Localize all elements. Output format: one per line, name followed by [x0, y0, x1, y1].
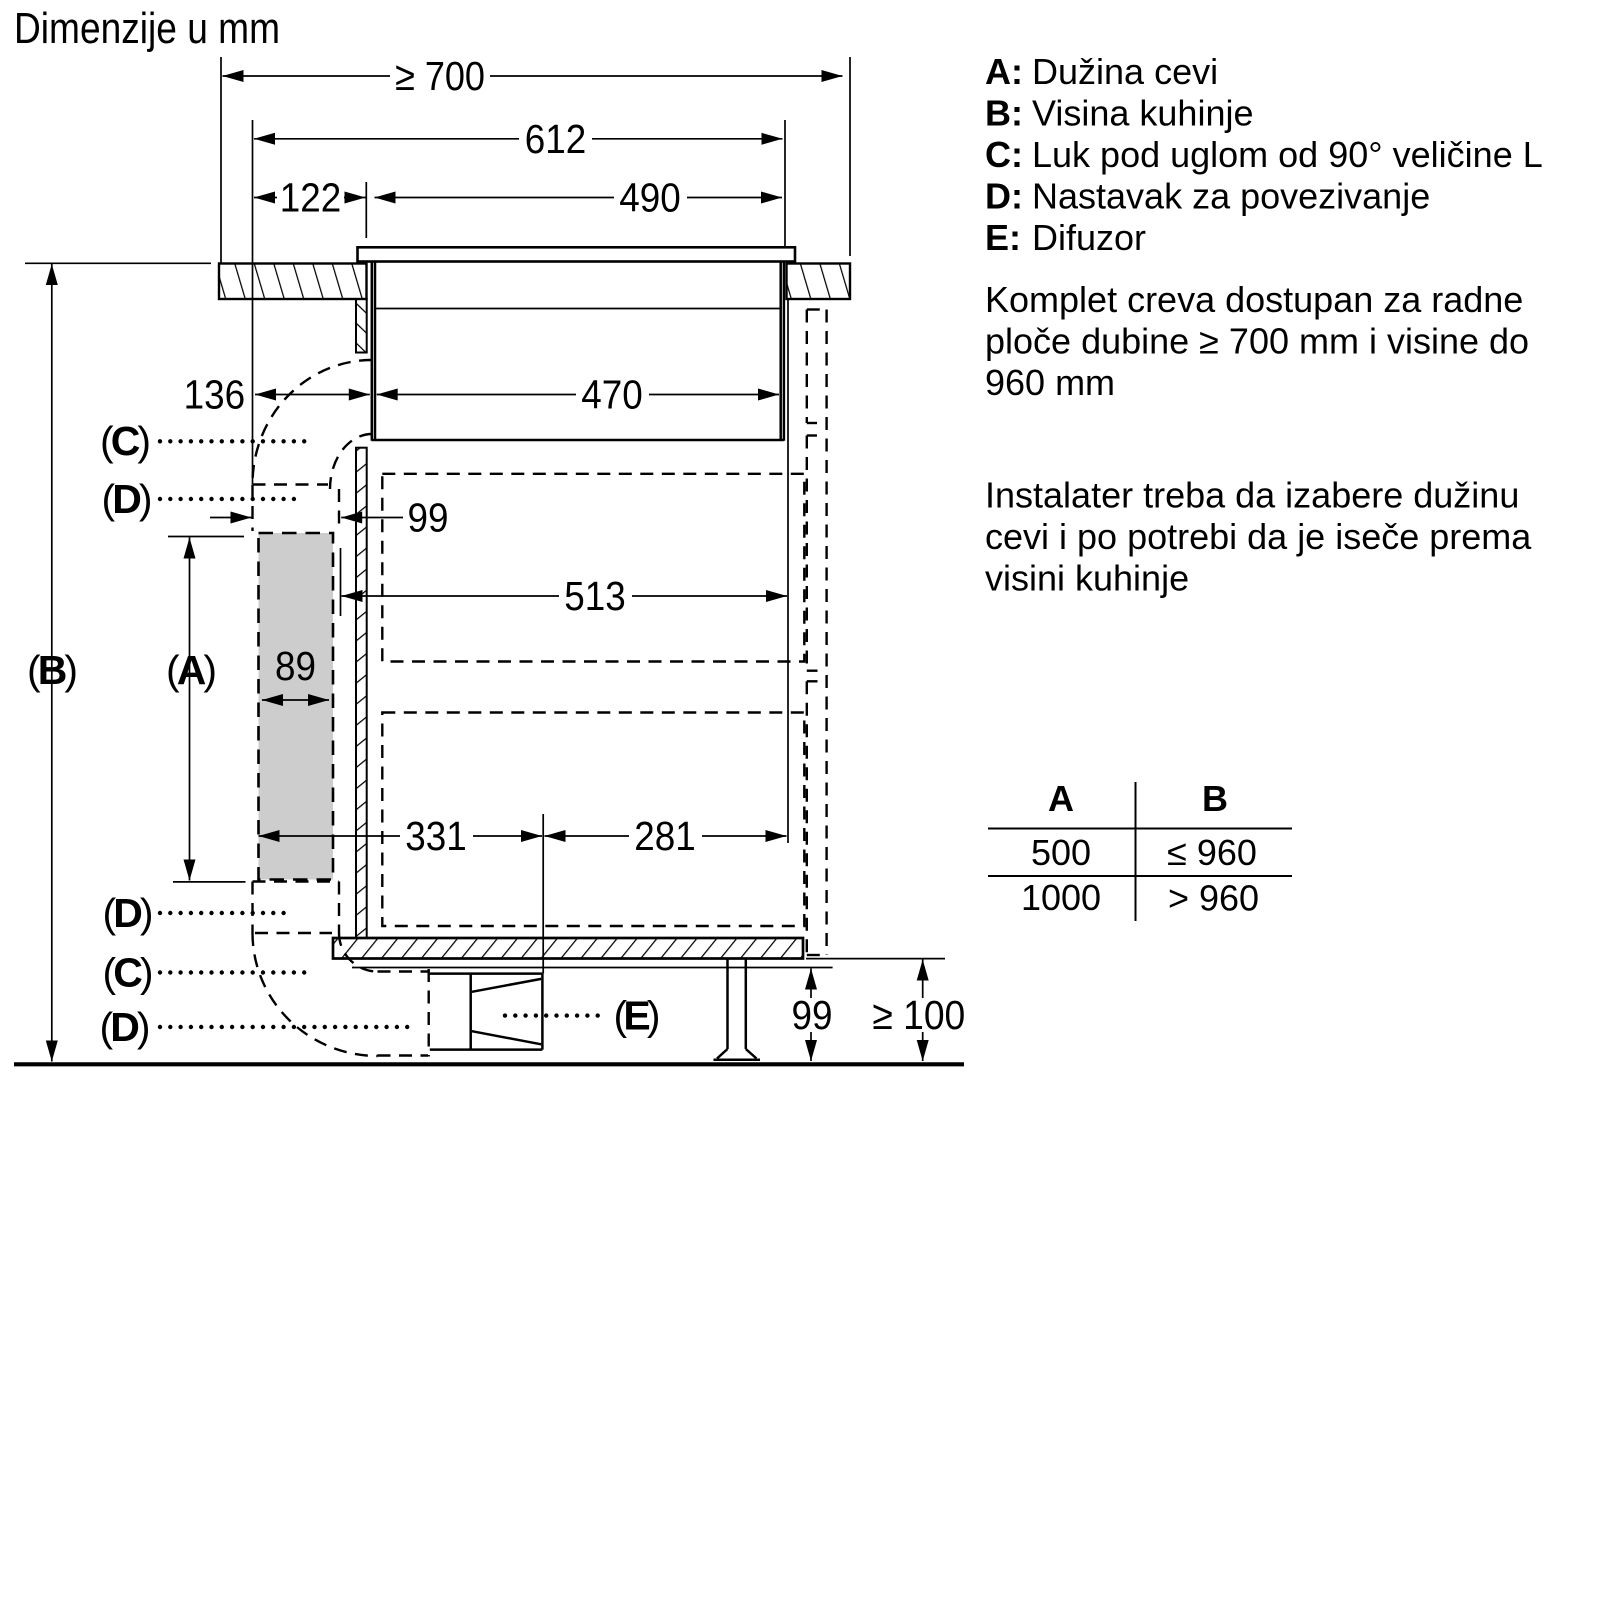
svg-text:B: B [1202, 778, 1228, 819]
svg-text:136: 136 [184, 372, 246, 418]
svg-text:Instalater treba da izabere du: Instalater treba da izabere dužinu [985, 475, 1519, 516]
svg-text:Dužina cevi: Dužina cevi [1032, 51, 1218, 92]
svg-text:≤ 960: ≤ 960 [1167, 832, 1257, 873]
svg-text:B:: B: [985, 93, 1023, 134]
svg-text:281: 281 [634, 813, 696, 859]
svg-text:visini kuhinje: visini kuhinje [985, 558, 1189, 599]
svg-text:≥ 700: ≥ 700 [395, 53, 485, 99]
svg-text:89: 89 [275, 643, 316, 689]
svg-text:500: 500 [1031, 832, 1091, 873]
svg-text:Dimenzije u mm: Dimenzije u mm [14, 4, 280, 53]
svg-text:A:: A: [985, 51, 1023, 92]
svg-text:Komplet creva dostupan za radn: Komplet creva dostupan za radne [985, 279, 1523, 320]
svg-text:> 960: > 960 [1168, 878, 1259, 919]
svg-text:Nastavak za povezivanje: Nastavak za povezivanje [1032, 176, 1430, 217]
svg-text:122: 122 [280, 175, 342, 221]
svg-text:490: 490 [619, 175, 681, 221]
svg-text:ploče dubine ≥ 700 mm i visine: ploče dubine ≥ 700 mm i visine do [985, 321, 1529, 362]
svg-text:A: A [1048, 778, 1074, 819]
svg-text:C:: C: [985, 134, 1023, 175]
svg-text:(E): (E) [614, 993, 661, 1039]
svg-text:(B): (B) [27, 647, 78, 693]
svg-text:331: 331 [405, 813, 467, 859]
svg-text:(D): (D) [100, 1004, 151, 1050]
svg-text:Difuzor: Difuzor [1032, 217, 1146, 258]
svg-text:513: 513 [564, 573, 626, 619]
svg-text:(D): (D) [102, 476, 153, 522]
svg-text:≥ 100: ≥ 100 [872, 992, 965, 1038]
svg-text:470: 470 [581, 372, 643, 418]
svg-text:99: 99 [792, 992, 833, 1038]
svg-text:612: 612 [525, 116, 587, 162]
svg-text:cevi i po potrebi da je iseče: cevi i po potrebi da je iseče prema [985, 516, 1532, 557]
svg-text:(C): (C) [100, 418, 151, 464]
svg-text:Visina kuhinje: Visina kuhinje [1032, 93, 1253, 134]
svg-text:(C): (C) [103, 950, 154, 996]
svg-text:(D): (D) [103, 890, 154, 936]
svg-text:D:: D: [985, 176, 1023, 217]
svg-text:(A): (A) [166, 647, 217, 693]
svg-text:99: 99 [408, 495, 449, 541]
svg-text:1000: 1000 [1021, 877, 1101, 918]
svg-text:960 mm: 960 mm [985, 362, 1115, 403]
svg-text:Luk pod uglom od 90° veličine: Luk pod uglom od 90° veličine L [1032, 134, 1543, 175]
svg-text:E:: E: [985, 217, 1021, 258]
